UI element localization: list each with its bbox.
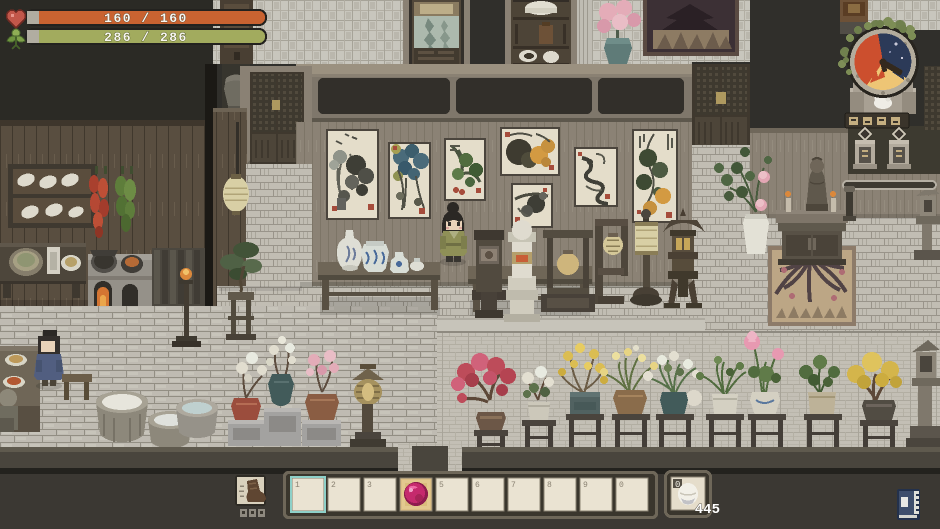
svg-text:8: 8 [547,481,552,490]
svg-text:286 / 286: 286 / 286 [104,30,188,45]
svg-text:160 / 160: 160 / 160 [104,11,188,26]
svg-text:0: 0 [619,481,624,490]
svg-text:445: 445 [695,502,720,518]
svg-text:9: 9 [583,481,588,490]
svg-text:1: 1 [295,481,300,490]
svg-text:2: 2 [331,481,336,490]
svg-text:3: 3 [367,481,372,490]
svg-text:6: 6 [475,481,480,490]
svg-text:7: 7 [511,481,516,490]
svg-text:5: 5 [439,481,444,490]
